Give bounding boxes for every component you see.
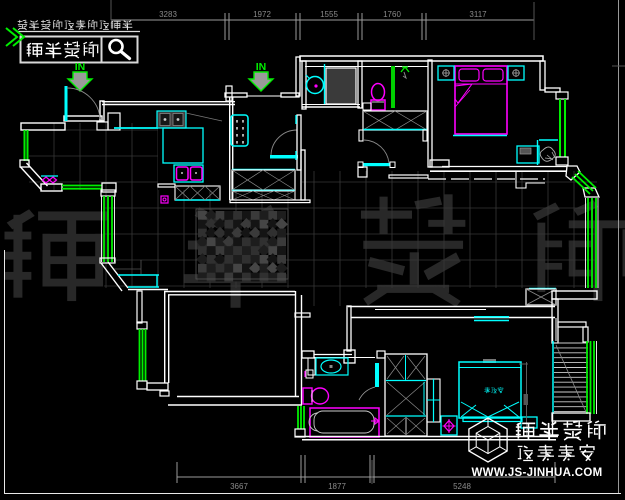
svg-text:WWW.JS-JINHUA.COM: WWW.JS-JINHUA.COM <box>472 467 603 479</box>
svg-text:1877: 1877 <box>328 482 346 491</box>
svg-text:IN: IN <box>75 61 86 73</box>
svg-text:3283: 3283 <box>159 10 177 19</box>
svg-text:IN: IN <box>256 61 267 73</box>
svg-text:3117: 3117 <box>469 10 487 19</box>
svg-text:3667: 3667 <box>230 482 248 491</box>
svg-text:5248: 5248 <box>453 482 471 491</box>
svg-text:1555: 1555 <box>320 10 338 19</box>
svg-text:1972: 1972 <box>253 10 271 19</box>
svg-text:1760: 1760 <box>383 10 401 19</box>
